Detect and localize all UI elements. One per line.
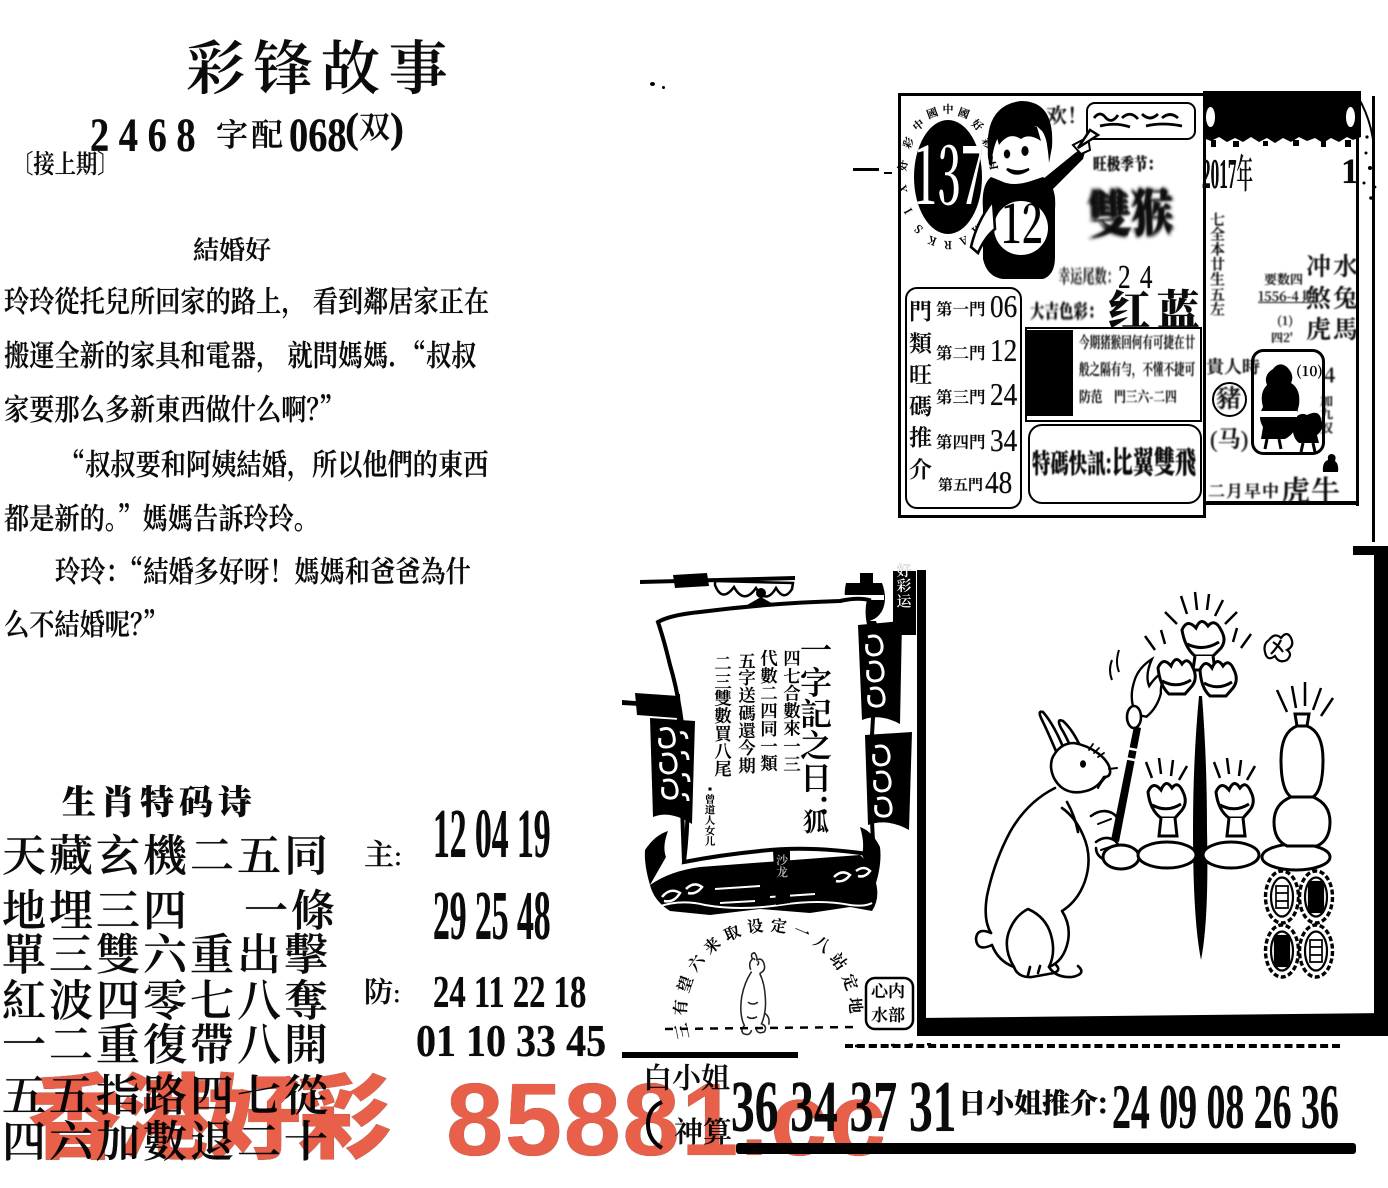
svg-text:狐: 狐 [803, 802, 829, 839]
svg-text:代數二四同一類: 代數二四同一類 [757, 649, 782, 772]
svg-text:12: 12 [1001, 180, 1043, 259]
svg-text:一: 一 [790, 918, 814, 945]
svg-text:水部: 水部 [871, 1001, 905, 1026]
svg-text:定: 定 [837, 970, 864, 993]
svg-text:▪曾道人女儿: ▪曾道人女儿 [703, 783, 718, 846]
svg-text:望: 望 [671, 973, 698, 996]
svg-text:来: 来 [698, 931, 725, 959]
svg-text:沙龙: 沙龙 [774, 853, 791, 877]
svg-text:站: 站 [825, 948, 853, 974]
svg-text:设: 设 [745, 913, 764, 938]
svg-text:二三雙數買八尾: 二三雙數買八尾 [711, 654, 736, 777]
svg-text:五字送碼還今期: 五字送碼還今期 [735, 651, 760, 774]
svg-text:有: 有 [668, 999, 692, 1017]
svg-text:地: 地 [844, 996, 868, 1014]
svg-text:定: 定 [770, 913, 789, 938]
svg-text:六: 六 [681, 949, 709, 975]
svg-text:X: X [894, 183, 911, 194]
svg-text:好彩运: 好彩运 [894, 563, 915, 609]
svg-text:三: 三 [669, 1021, 695, 1041]
svg-text:八: 八 [809, 929, 836, 957]
svg-text:好: 好 [894, 158, 912, 172]
svg-text:(10): (10) [1296, 361, 1323, 381]
svg-text:四七合數來一三: 四七合數來一三 [780, 649, 805, 772]
svg-text:心内: 心内 [871, 977, 905, 1002]
svg-text:取: 取 [720, 918, 744, 946]
svg-text:R: R [944, 237, 952, 253]
svg-text:K: K [925, 232, 939, 250]
